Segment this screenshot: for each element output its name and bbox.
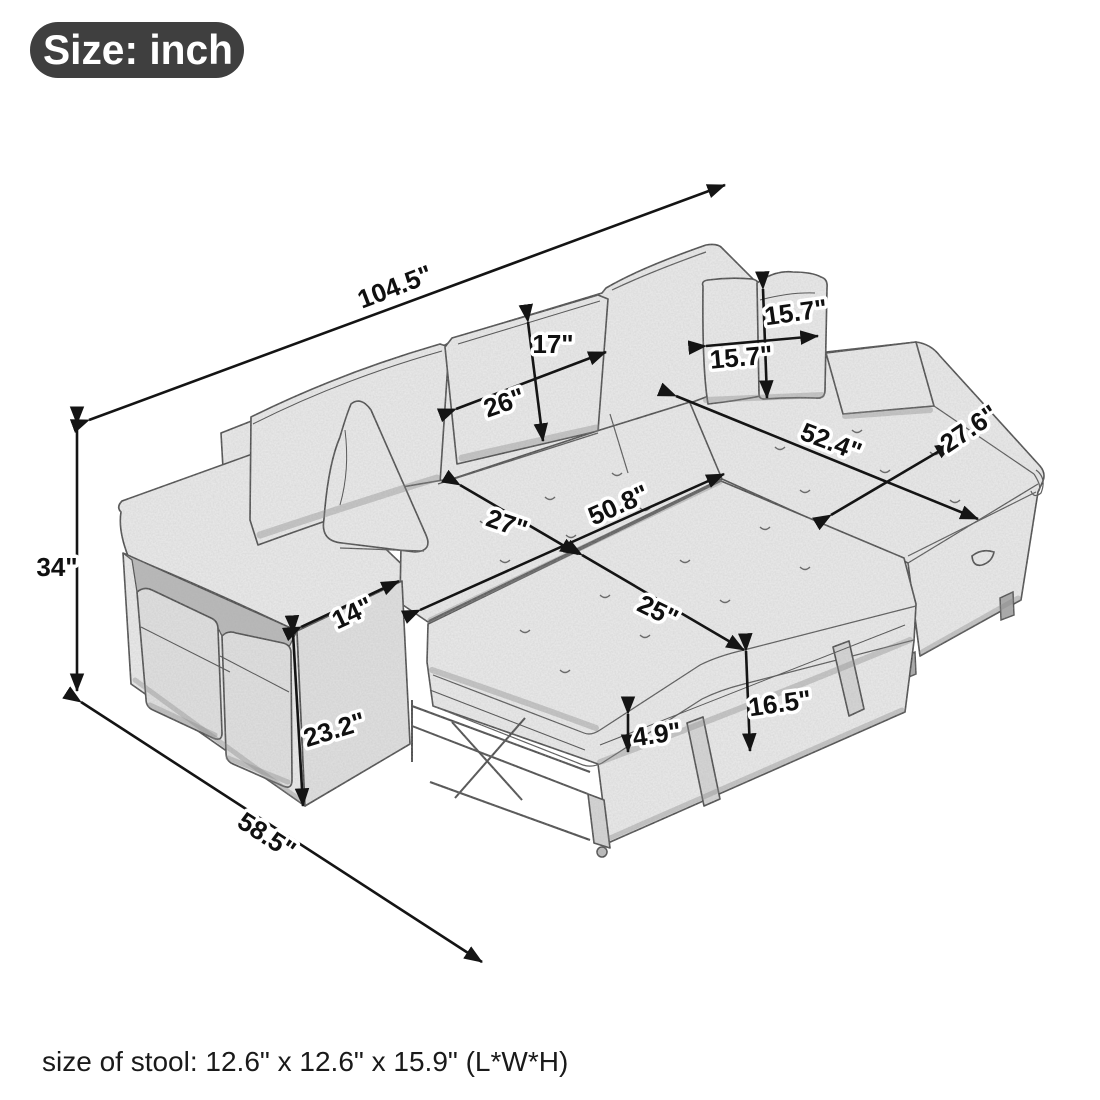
svg-text:17": 17" <box>532 329 573 359</box>
svg-text:34": 34" <box>36 552 77 582</box>
svg-text:Size: inch: Size: inch <box>43 26 233 73</box>
svg-text:58.5": 58.5" <box>232 806 301 865</box>
svg-text:15.7": 15.7" <box>709 339 774 374</box>
svg-text:size of stool: 12.6" x 12.6" x: size of stool: 12.6" x 12.6" x 15.9" (L*… <box>42 1046 568 1077</box>
